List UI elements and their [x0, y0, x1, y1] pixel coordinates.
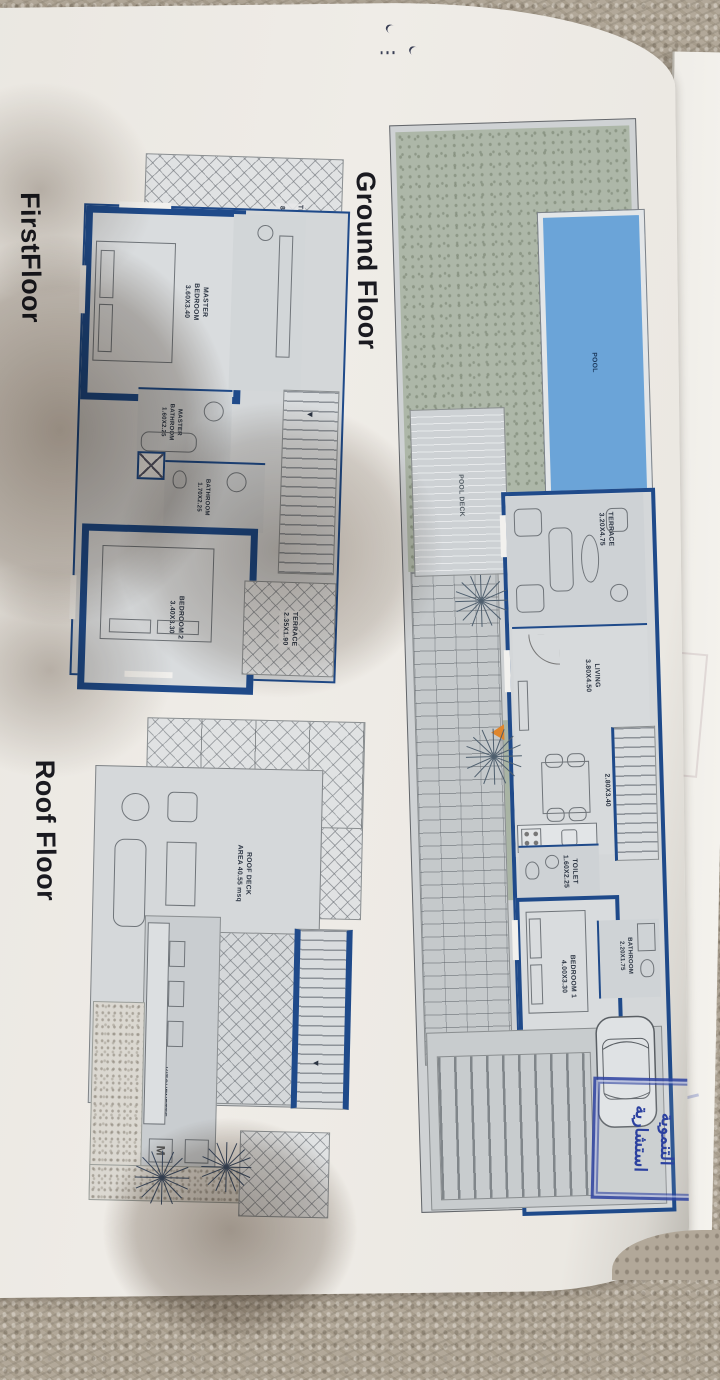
dining-chair-drawing	[567, 753, 585, 768]
stamp-line1: التنموية	[653, 1106, 680, 1173]
gf-bathroom-label: BATHROOM 2.20X1.75	[617, 937, 634, 974]
stool-drawing	[257, 225, 273, 241]
floorplan-page: FirstFloor Ground Floor Roof Floor POOL …	[0, 0, 690, 1298]
pillow	[109, 618, 151, 633]
ff-master-bedroom: MASTER BEDROOM 3.60X3.40	[80, 205, 246, 404]
pillow	[529, 918, 542, 958]
appliance-drawing	[169, 941, 186, 967]
washbasin-drawing	[545, 855, 559, 869]
gf-living-label: LIVING 3.80X4.50	[583, 658, 602, 692]
sofa-drawing	[113, 838, 147, 927]
plant-drawing	[452, 572, 510, 630]
pillow	[530, 964, 543, 1004]
service-shaft	[137, 451, 166, 480]
appliance-drawing	[168, 981, 185, 1007]
pen-mark	[384, 23, 400, 37]
bed-drawing	[100, 545, 215, 642]
round-table-drawing	[121, 793, 150, 822]
first-floor-plan: TERRACE AREA 8.95 sqm MASTER BEDROOM 3.6…	[64, 145, 359, 709]
pool-deck-label: POOL DECK	[455, 474, 465, 517]
side-table-drawing	[610, 584, 629, 603]
tv-unit-drawing	[518, 681, 529, 731]
bathtub-drawing	[141, 431, 198, 453]
ff-master-bedroom-label: MASTER BEDROOM 3.60X3.40	[181, 283, 209, 321]
wc-drawing	[172, 470, 187, 488]
ff-dressing-area	[228, 214, 305, 392]
sink-drawing	[561, 829, 577, 845]
desk-drawing	[276, 235, 294, 357]
side-chair-drawing	[606, 508, 629, 533]
ff-bathroom: BATHROOM 1.70X2.25	[163, 460, 265, 533]
wc-drawing	[640, 959, 655, 977]
stamp-text: التنموية استشارية	[628, 1105, 680, 1173]
stairs-direction-arrow: ▼	[311, 1059, 321, 1068]
roof-floor-plan: ROOF DECK AREA 40.55 msq KITCHENETTE M ▼	[80, 709, 383, 1223]
pillow	[98, 304, 114, 352]
washbasin-drawing	[226, 472, 247, 493]
armchair-drawing	[514, 508, 543, 537]
bed-drawing	[92, 241, 176, 363]
pool-deck: POOL DECK	[410, 407, 510, 577]
ff-stairs: ▼	[278, 390, 340, 576]
washbasin-drawing	[203, 401, 224, 422]
ground-floor-plan: POOL POOL DECK TERRACE 3.20X4.75 LIVING …	[387, 116, 671, 1215]
gf-bathroom: BATHROOM 2.20X1.75	[597, 919, 661, 999]
gf-toilet: TOILET 1.60X2.25	[519, 844, 601, 900]
roof-floor-title: Roof Floor	[29, 760, 62, 902]
armchair-drawing	[167, 792, 198, 823]
appliance-drawing	[167, 1021, 184, 1047]
pillow	[99, 250, 115, 298]
ff-bathroom-label: BATHROOM 1.70X2.25	[194, 478, 211, 515]
pen-mark	[407, 44, 422, 58]
stairs-direction-arrow: ▼	[305, 410, 315, 419]
door-arc	[528, 634, 560, 666]
ff-terrace2: TERRACE 2.35X1.90	[242, 581, 337, 678]
pool: POOL	[538, 210, 653, 515]
approval-stamp: التنموية استشارية	[591, 1077, 690, 1202]
window-gap	[500, 515, 507, 557]
pool-label: POOL	[589, 352, 598, 373]
dining-chair-drawing	[568, 807, 586, 822]
plant-drawing	[463, 726, 525, 788]
window-gap	[504, 650, 511, 692]
table-drawing	[165, 842, 196, 907]
rf-stairs: ▼	[291, 929, 353, 1110]
stamp-line2: استشارية	[628, 1105, 655, 1172]
window-gap	[512, 920, 519, 960]
plant-drawing	[199, 1139, 254, 1194]
rf-deck-label: ROOF DECK AREA 40.55 msq	[234, 845, 253, 903]
pen-dots	[381, 51, 395, 54]
dining-table-drawing	[541, 761, 591, 814]
shower-drawing	[637, 923, 656, 952]
rf-kitchenette: KITCHENETTE M	[139, 915, 221, 1177]
ff-bedroom2: BEDROOM 2 3.40X3.30	[77, 523, 258, 694]
sofa-drawing	[548, 527, 574, 592]
gf-terrace: TERRACE 3.20X4.75	[505, 493, 647, 627]
bed-drawing	[526, 910, 589, 1014]
ff-terrace2-label: TERRACE 2.35X1.90	[279, 610, 300, 647]
dining-chair-drawing	[546, 808, 564, 823]
dining-chair-drawing	[545, 754, 563, 769]
plant-drawing	[132, 1148, 191, 1207]
driveway-stripes	[437, 1052, 595, 1201]
gf-toilet-label: TOILET 1.60X2.25	[560, 855, 579, 889]
armchair-drawing	[516, 584, 545, 613]
counter-drawing	[143, 922, 170, 1124]
brick-path	[410, 569, 513, 1065]
gf-stairs	[611, 726, 659, 861]
wc-drawing	[525, 861, 540, 879]
first-floor-title: FirstFloor	[14, 192, 47, 323]
pillow	[157, 620, 199, 635]
